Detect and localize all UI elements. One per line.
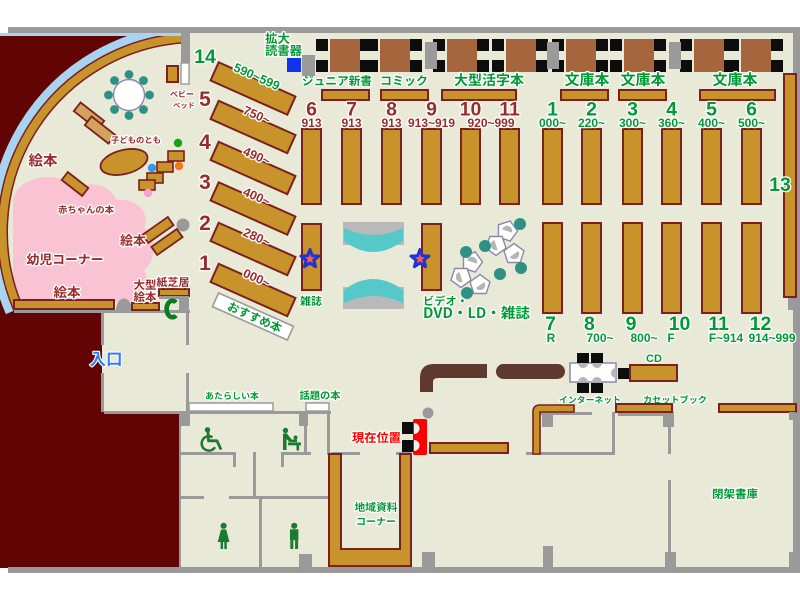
svg-text:913: 913 [301,116,321,130]
svg-text:R: R [547,331,556,345]
svg-text:800~: 800~ [630,331,657,345]
svg-text:F: F [667,331,674,345]
svg-text:220~: 220~ [578,116,605,130]
svg-text:360~: 360~ [658,116,685,130]
svg-text:1: 1 [199,252,211,275]
svg-text:500~: 500~ [738,116,765,130]
svg-text:2: 2 [199,212,211,235]
svg-text:5: 5 [199,88,211,111]
svg-text:914~999: 914~999 [748,331,795,345]
svg-text:3: 3 [199,171,211,194]
svg-text:F~914: F~914 [709,331,744,345]
svg-text:14: 14 [194,46,216,68]
svg-text:400~: 400~ [698,116,725,130]
svg-text:913~919: 913~919 [408,116,455,130]
svg-text:CD: CD [646,353,662,365]
svg-text:4: 4 [199,131,211,154]
svg-text:300~: 300~ [619,116,646,130]
svg-text:913: 913 [381,116,401,130]
svg-text:13: 13 [769,174,791,196]
svg-text:700~: 700~ [586,331,613,345]
svg-text:000~: 000~ [539,116,566,130]
svg-text:920~999: 920~999 [467,116,514,130]
svg-text:913: 913 [341,116,361,130]
